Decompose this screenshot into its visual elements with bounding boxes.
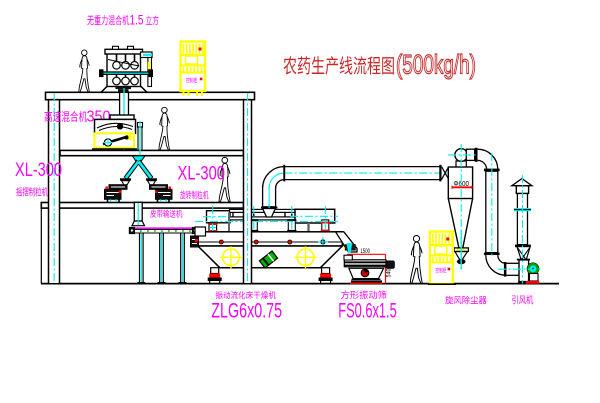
svg-text:FS0.6x1.5: FS0.6x1.5 (338, 299, 396, 322)
svg-text:ZLG6x0.75: ZLG6x0.75 (211, 299, 282, 322)
svg-text:(500kg/h): (500kg/h) (396, 50, 476, 80)
svg-text:XL-300: XL-300 (178, 164, 226, 185)
svg-text:XL-300: XL-300 (15, 160, 62, 181)
svg-text:1500: 1500 (361, 249, 371, 255)
svg-text:1.5: 1.5 (130, 12, 144, 27)
svg-text:540: 540 (387, 268, 393, 278)
